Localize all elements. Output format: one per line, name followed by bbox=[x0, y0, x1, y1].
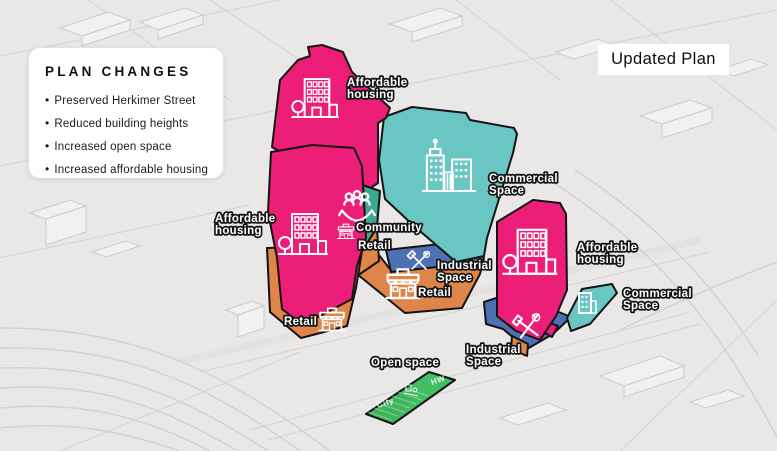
label-affordable-top-line2: housing bbox=[347, 89, 394, 101]
label-commercial-main-line1: Commercial bbox=[489, 173, 558, 185]
label-open-space: Open space bbox=[371, 357, 439, 369]
plan-change-item: Increased affordable housing bbox=[45, 158, 209, 181]
plan-changes-panel: PLAN CHANGES Preserved Herkimer Street R… bbox=[28, 47, 224, 179]
label-affordable-right-line1: Affordable bbox=[577, 242, 638, 254]
label-affordable-right-line2: housing bbox=[577, 254, 624, 266]
label-affordable-top-line1: Affordable bbox=[347, 77, 408, 89]
label-industrial-mid-line1: Industrial bbox=[437, 260, 492, 272]
label-industrial-mid-line2: Space bbox=[437, 272, 472, 284]
label-retail-left: Retail bbox=[284, 316, 317, 328]
plan-change-item: Preserved Herkimer Street bbox=[45, 89, 209, 112]
label-commercial-main-line2: Space bbox=[489, 185, 524, 197]
label-community: Community bbox=[356, 222, 422, 234]
plan-changes-title: PLAN CHANGES bbox=[45, 64, 209, 79]
label-industrial-right-line1: Industrial bbox=[466, 344, 521, 356]
plan-changes-list: Preserved Herkimer Street Reduced buildi… bbox=[45, 89, 209, 181]
label-commercial-right-line1: Commercial bbox=[623, 288, 692, 300]
label-commercial-right-line2: Space bbox=[623, 300, 658, 312]
label-affordable-left-line1: Affordable bbox=[215, 213, 276, 225]
label-industrial-right-line2: Space bbox=[466, 356, 501, 368]
label-retail-upper: Retail bbox=[358, 240, 391, 252]
label-affordable-left-line2: housing bbox=[215, 225, 262, 237]
label-retail-mid: Retail bbox=[418, 287, 451, 299]
plan-change-item: Reduced building heights bbox=[45, 112, 209, 135]
plan-change-item: Increased open space bbox=[45, 135, 209, 158]
updated-plan-title-box: Updated Plan bbox=[598, 44, 729, 75]
site-plan-diagram: Affordable housing Commercial Space Affo… bbox=[0, 0, 777, 451]
